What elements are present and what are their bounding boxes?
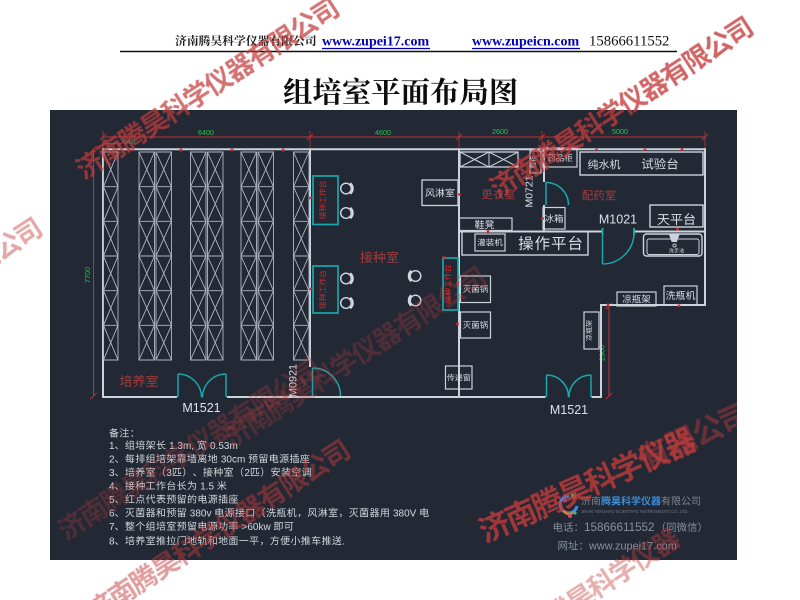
svg-text:1: 1 xyxy=(109,441,115,452)
svg-text:380V: 380V xyxy=(393,508,417,519)
svg-text:380v: 380v xyxy=(190,508,212,519)
svg-text:5000: 5000 xyxy=(612,127,628,136)
svg-text:M1021: M1021 xyxy=(599,213,637,227)
svg-text:7: 7 xyxy=(109,522,115,533)
svg-text:8: 8 xyxy=(109,536,115,547)
svg-text:6400: 6400 xyxy=(198,128,214,137)
svg-text:>60kw: >60kw xyxy=(242,522,272,533)
svg-text:2: 2 xyxy=(244,468,250,479)
svg-text:4600: 4600 xyxy=(375,128,391,137)
svg-text:7700: 7700 xyxy=(83,267,92,283)
svg-text:1.5: 1.5 xyxy=(200,481,214,492)
svg-text:www.zupei17.com: www.zupei17.com xyxy=(322,35,429,50)
svg-text:15866611552: 15866611552 xyxy=(589,34,669,50)
svg-text:.: . xyxy=(342,536,345,547)
svg-text:15866611552: 15866611552 xyxy=(584,521,655,534)
svg-text:JINAN TENGHAO SCIENTIFIC INSTR: JINAN TENGHAO SCIENTIFIC INSTRUMENTS CO.… xyxy=(581,509,688,514)
svg-text:30cm: 30cm xyxy=(221,454,245,465)
svg-text:2600: 2600 xyxy=(492,127,508,136)
svg-text:3: 3 xyxy=(109,468,115,479)
svg-text:M1521: M1521 xyxy=(550,403,588,417)
svg-text:2: 2 xyxy=(109,454,115,465)
svg-text:M0721: M0721 xyxy=(524,175,536,207)
svg-text:M1521: M1521 xyxy=(182,401,220,415)
svg-text:www.zupeicn.com: www.zupeicn.com xyxy=(472,35,579,50)
